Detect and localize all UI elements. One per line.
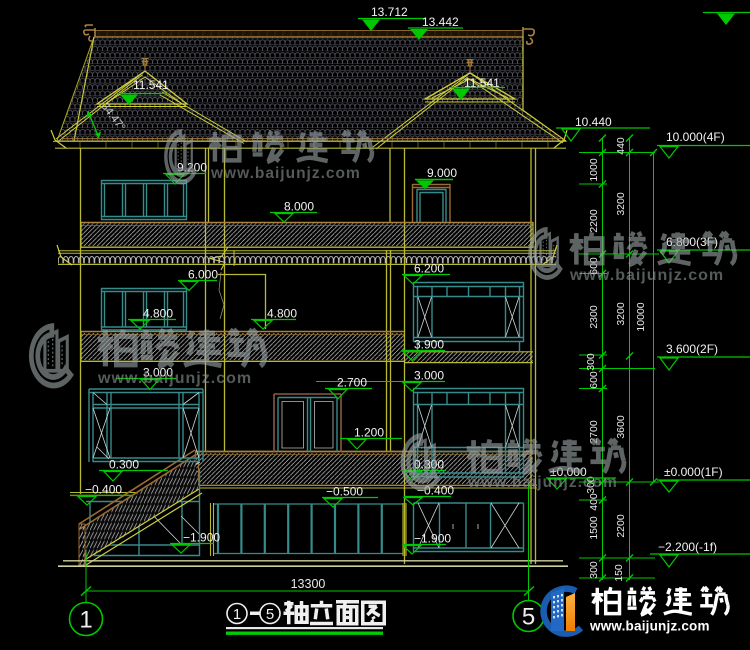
svg-text:1000: 1000 bbox=[588, 158, 600, 182]
svg-text:13.712: 13.712 bbox=[371, 5, 408, 19]
svg-text:10000: 10000 bbox=[635, 302, 647, 331]
svg-text:www.baijunjz.com: www.baijunjz.com bbox=[210, 165, 361, 182]
svg-text:1.200: 1.200 bbox=[354, 426, 384, 440]
svg-text:www.baijunjz.com: www.baijunjz.com bbox=[97, 370, 252, 387]
svg-text:400: 400 bbox=[588, 493, 600, 511]
svg-text:3.900: 3.900 bbox=[414, 338, 444, 352]
svg-text:13.442: 13.442 bbox=[422, 15, 459, 29]
svg-text:9.000: 9.000 bbox=[427, 166, 457, 180]
svg-text:4.800: 4.800 bbox=[267, 307, 297, 321]
svg-text:300: 300 bbox=[588, 561, 600, 579]
svg-text:3.600(2F): 3.600(2F) bbox=[666, 342, 718, 356]
svg-text:4.800: 4.800 bbox=[143, 307, 173, 321]
svg-text:8.000: 8.000 bbox=[284, 200, 314, 214]
svg-text:±0.000(1F): ±0.000(1F) bbox=[664, 465, 723, 479]
svg-text:440: 440 bbox=[615, 137, 627, 155]
svg-text:www.baijunjz.com: www.baijunjz.com bbox=[589, 619, 710, 634]
svg-text:3.000: 3.000 bbox=[414, 369, 444, 383]
svg-text:10.440: 10.440 bbox=[575, 115, 612, 129]
svg-text:11.541: 11.541 bbox=[133, 78, 169, 92]
svg-text:1: 1 bbox=[233, 606, 241, 623]
svg-text:2.700: 2.700 bbox=[337, 376, 367, 390]
svg-text:13300: 13300 bbox=[291, 577, 326, 591]
svg-text:1500: 1500 bbox=[588, 516, 600, 540]
svg-text:−0.500: −0.500 bbox=[326, 485, 363, 499]
svg-text:−1.900: −1.900 bbox=[183, 531, 220, 545]
svg-text:6.000: 6.000 bbox=[188, 268, 218, 282]
svg-text:−1.900: −1.900 bbox=[414, 532, 451, 546]
svg-text:1: 1 bbox=[79, 607, 92, 634]
svg-text:6.200: 6.200 bbox=[414, 262, 444, 276]
svg-text:5: 5 bbox=[522, 604, 535, 631]
svg-text:5: 5 bbox=[266, 606, 274, 623]
svg-text:−0.400: −0.400 bbox=[85, 483, 122, 497]
svg-text:150: 150 bbox=[613, 564, 625, 582]
svg-text:www.baijunjz.com: www.baijunjz.com bbox=[569, 267, 724, 284]
svg-text:2200: 2200 bbox=[615, 514, 627, 538]
svg-text:2300: 2300 bbox=[588, 305, 600, 329]
svg-text:0.300: 0.300 bbox=[109, 458, 139, 472]
svg-text:0.300: 0.300 bbox=[414, 458, 444, 472]
svg-text:10.000(4F): 10.000(4F) bbox=[666, 130, 725, 144]
svg-text:−2.200(-1f): −2.200(-1f) bbox=[658, 540, 717, 554]
svg-text:3600: 3600 bbox=[615, 415, 627, 439]
svg-text:2200: 2200 bbox=[588, 209, 600, 233]
svg-text:3200: 3200 bbox=[615, 302, 627, 326]
svg-text:600: 600 bbox=[588, 371, 600, 389]
svg-text:300: 300 bbox=[585, 353, 597, 371]
svg-text:www.baijunjz.com: www.baijunjz.com bbox=[467, 474, 618, 491]
svg-text:3200: 3200 bbox=[615, 192, 627, 216]
